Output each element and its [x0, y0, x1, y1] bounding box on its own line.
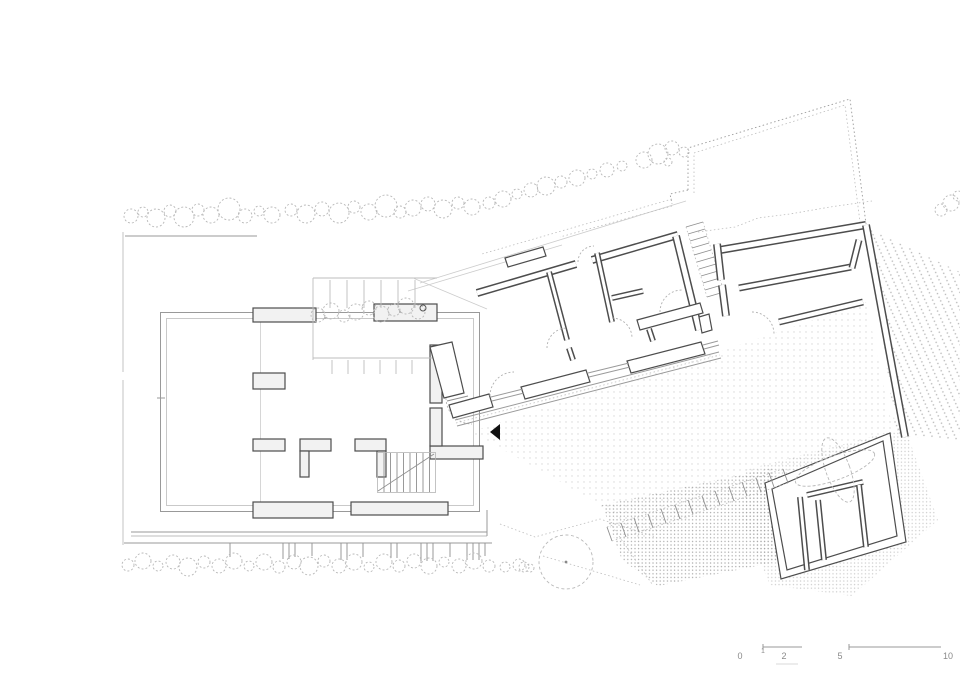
wall-segment [300, 439, 331, 451]
scale-label-5: 5 [837, 651, 842, 661]
wall-segment [253, 439, 285, 451]
wall-segment [253, 502, 333, 518]
floor-plan-page: 0 1 2 5 10 [0, 0, 960, 695]
door-swing [578, 246, 594, 262]
wall-segment [377, 451, 386, 477]
wall-segment [253, 373, 285, 389]
wall-segment [300, 451, 309, 477]
hedge-bottom [122, 553, 534, 576]
door-swing [612, 318, 632, 338]
tree-row-top [124, 141, 960, 227]
wall-segment [253, 308, 316, 322]
left-building [157, 304, 483, 518]
wall-segment [355, 439, 386, 451]
wall-segment [351, 502, 448, 515]
scale-label-10: 10 [943, 651, 953, 661]
scale-bar: 0 1 2 5 10 [737, 644, 953, 664]
door-swing [752, 312, 774, 334]
floor-plan-canvas: 0 1 2 5 10 [0, 0, 960, 695]
fence-ticks [230, 543, 485, 561]
wall-segment [699, 314, 712, 333]
wall-segment [430, 408, 442, 446]
wall-segment [449, 394, 493, 418]
scale-label-0: 0 [737, 651, 742, 661]
wall-segment [430, 446, 483, 459]
wall-segment [505, 247, 546, 267]
pergola-canopy [313, 278, 487, 374]
scale-label-2: 2 [781, 651, 786, 661]
scale-label-1: 1 [761, 648, 765, 655]
